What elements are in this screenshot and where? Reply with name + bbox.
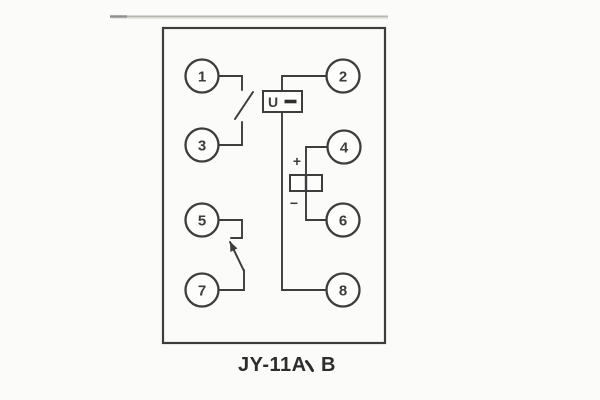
polarity-branch-4-6: + − [290, 147, 328, 220]
terminal-3: 3 [186, 129, 219, 162]
contact-1-3 [219, 76, 254, 145]
scanned-page: U + − 1 2 3 4 5 6 7 8 [0, 0, 600, 400]
wire-coil-to-terminal-8 [282, 112, 327, 290]
contact-blade-1-3 [235, 92, 253, 119]
wire-terminal-7 [219, 270, 245, 290]
wire-terminal-3 [219, 122, 243, 145]
terminal-8-label: 8 [339, 283, 347, 300]
terminal-7: 7 [186, 274, 219, 307]
contact-5-7 [219, 220, 245, 290]
caption-model-text: JY-11A [238, 354, 307, 376]
wire-terminal-2 [282, 76, 327, 91]
caption-variant-text: B [321, 354, 336, 376]
wire-terminal-4 [306, 147, 328, 175]
terminal-2: 2 [327, 60, 360, 93]
terminal-4: 4 [328, 131, 361, 164]
relay-wiring-diagram: U + − 1 2 3 4 5 6 7 8 [0, 0, 600, 400]
caption: JY-11A B [238, 354, 336, 376]
ideographic-comma-icon [307, 362, 313, 371]
terminal-3-label: 3 [198, 138, 206, 155]
terminal-1: 1 [186, 60, 219, 93]
wire-terminal-6 [306, 191, 327, 220]
coil-letter: U [268, 94, 278, 110]
terminal-5-label: 5 [198, 213, 206, 230]
polarity-element-box-right [306, 175, 322, 191]
polarity-element-box-left [290, 175, 306, 191]
terminal-6: 6 [327, 204, 360, 237]
terminal-5: 5 [186, 204, 219, 237]
terminal-7-label: 7 [198, 283, 206, 300]
terminal-2-label: 2 [339, 69, 347, 86]
wire-terminal-5 [219, 220, 243, 238]
minus-sign: − [290, 195, 298, 211]
wire-terminal-1 [219, 76, 243, 90]
terminal-1-label: 1 [198, 69, 206, 86]
terminal-4-label: 4 [340, 140, 349, 157]
terminal-8: 8 [327, 274, 360, 307]
plus-sign: + [293, 153, 301, 169]
terminal-6-label: 6 [339, 213, 347, 230]
